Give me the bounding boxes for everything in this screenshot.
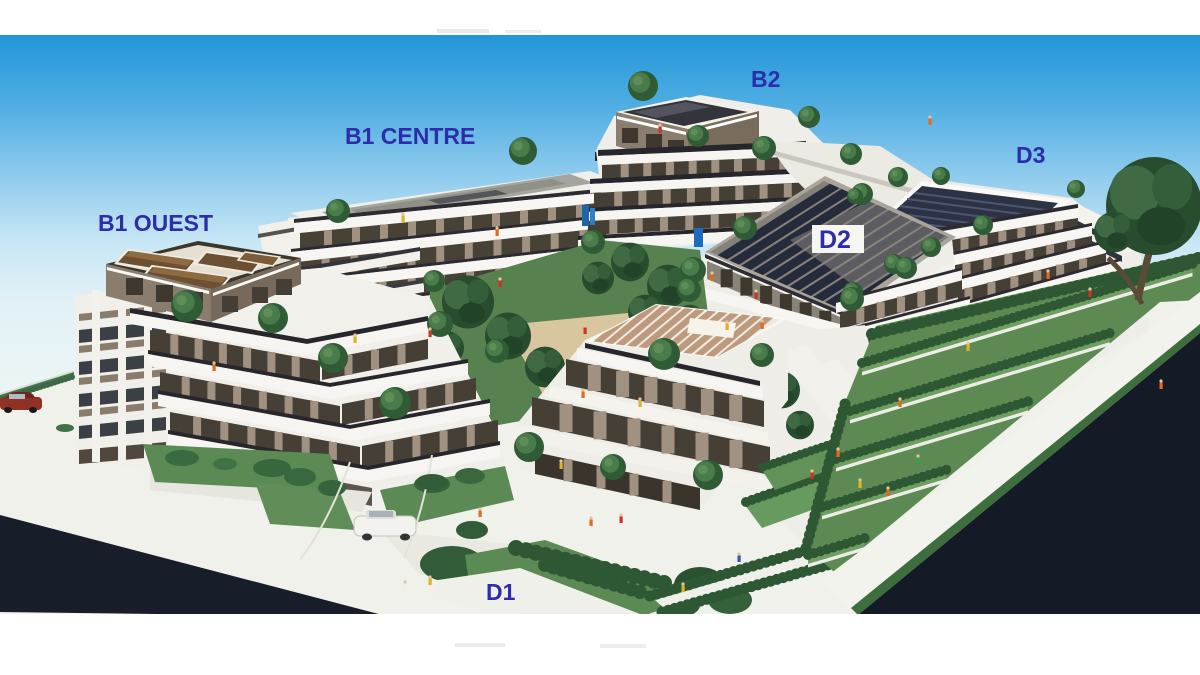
svg-text:D3: D3	[1016, 142, 1045, 168]
svg-text:B1 CENTRE: B1 CENTRE	[345, 123, 475, 149]
svg-text:D1: D1	[486, 579, 516, 605]
svg-text:B2: B2	[751, 66, 780, 92]
svg-text:B1 OUEST: B1 OUEST	[98, 210, 213, 236]
svg-text:D2: D2	[819, 226, 851, 254]
